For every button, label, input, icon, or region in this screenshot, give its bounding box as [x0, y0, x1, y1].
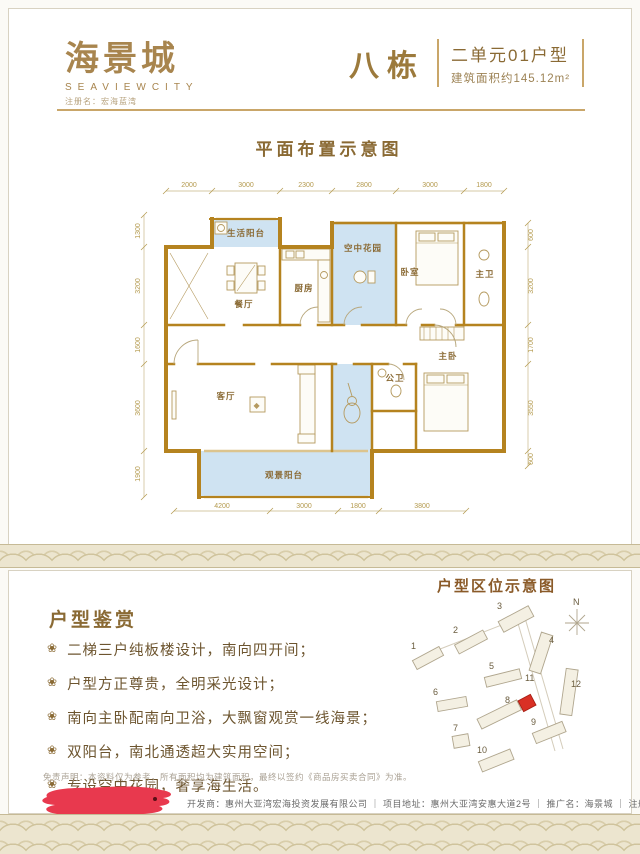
dim-left-4: 3600: [135, 400, 142, 416]
dim-top-3: 2300: [298, 182, 314, 189]
flower-bullet-icon: ❀: [47, 673, 58, 692]
brand-logo: 海景城 SEAVIEWCITY 注册名：宏海蓝湾: [65, 31, 285, 107]
label-bedroom: 卧室: [400, 267, 419, 277]
dim-bottom-2: 3000: [296, 503, 312, 510]
dim-left-2: 3200: [135, 278, 142, 294]
scribble-dot: [153, 797, 157, 801]
appreciation-item-text: 二梯三户纯板楼设计，南向四开间；: [67, 639, 315, 660]
list-item: ❀ 双阳台，南北通透超大实用空间；: [47, 741, 377, 762]
flower-bullet-icon: ❀: [47, 707, 58, 726]
floorplan-drawing: 2000 3000 2300 2800 3000 1800 4200 3000 …: [104, 159, 574, 537]
list-item: ❀ 户型方正尊贵，全明采光设计；: [47, 673, 377, 694]
north-compass-icon: [565, 609, 589, 635]
dim-right-3: 1700: [528, 337, 535, 353]
list-item: ❀ 二梯三户纯板楼设计，南向四开间；: [47, 639, 377, 660]
bldg-num-9: 9: [531, 717, 536, 727]
bldg-num-5: 5: [489, 661, 494, 671]
bldg-num-10: 10: [477, 745, 487, 755]
north-label: N: [573, 597, 580, 607]
header-divider-right: [582, 39, 584, 87]
appreciation-item-text: 双阳台，南北通透超大实用空间；: [67, 741, 300, 762]
dim-top-6: 1800: [476, 182, 492, 189]
dim-top-5: 3000: [422, 182, 438, 189]
svg-text:◆: ◆: [254, 401, 261, 410]
label-master-bath: 主卫: [475, 269, 494, 279]
dim-bottom-4: 3800: [414, 503, 430, 510]
label-sky-garden: 空中花园: [344, 243, 382, 253]
bldg-num-1: 1: [411, 641, 416, 651]
balcony-fills: [199, 219, 396, 497]
dim-right-2: 3200: [528, 278, 535, 294]
label-kitchen: 厨房: [294, 283, 313, 293]
logo-name-cn: 海景城: [65, 31, 285, 80]
logo-name-en: SEAVIEWCITY: [65, 82, 285, 93]
bldg-num-8: 8: [505, 695, 510, 705]
label-view-balcony: 观景阳台: [265, 470, 303, 480]
furniture: ◆: [170, 222, 489, 443]
site-location-map: 1 2 3 4 5 6 7 8 9 10 11 12 N: [405, 591, 627, 787]
bldg-num-3: 3: [497, 601, 502, 611]
header-rule: [57, 109, 585, 111]
bldg-num-2: 2: [453, 625, 458, 635]
dim-left-5: 1900: [135, 466, 142, 482]
wave-pattern-band-bottom: [0, 814, 640, 854]
flower-bullet-icon: ❀: [47, 741, 58, 760]
building-name: 八栋: [349, 41, 425, 85]
dim-top-4: 2800: [356, 182, 372, 189]
dim-left-1: 1300: [135, 223, 142, 239]
blue-corridor-area: [332, 364, 372, 451]
logo-registered-name: 注册名：宏海蓝湾: [65, 96, 285, 107]
dim-top-1: 2000: [181, 182, 197, 189]
unit-header: 八栋 二单元01户型 建筑面积约145.12m²: [349, 39, 596, 87]
bldg-num-4: 4: [549, 635, 554, 645]
label-dining: 餐厅: [233, 299, 253, 309]
bldg-num-12: 12: [571, 679, 581, 689]
label-life-balcony: 生活阳台: [227, 228, 265, 238]
header-divider: [437, 39, 439, 87]
dim-left-3: 1600: [135, 337, 142, 353]
appreciation-item-text: 南向主卧配南向卫浴，大飘窗观赏一线海景；: [67, 707, 377, 728]
appreciation-title: 户型鉴赏: [49, 605, 137, 632]
dim-bottom-3: 1800: [350, 503, 366, 510]
unit-area: 建筑面积约145.12m²: [451, 70, 570, 86]
flower-bullet-icon: ❀: [47, 639, 58, 658]
dim-right-1: 600: [528, 229, 535, 241]
footer-row: 开发商：惠州大亚湾宏海投资发展有限公司 ｜ 项目地址：惠州大亚湾安惠大道2号 ｜…: [9, 789, 631, 813]
developer-info: 开发商：惠州大亚湾宏海投资发展有限公司 ｜ 项目地址：惠州大亚湾安惠大道2号 ｜…: [187, 797, 640, 810]
bldg-num-7: 7: [453, 723, 458, 733]
wave-pattern-band-middle: [0, 544, 640, 568]
appreciation-item-text: 户型方正尊贵，全明采光设计；: [67, 673, 284, 694]
dim-top-2: 3000: [238, 182, 254, 189]
dim-right-5: 600: [528, 453, 535, 465]
label-living: 客厅: [215, 391, 235, 401]
unit-type: 二单元01户型: [451, 41, 570, 66]
plan-title: 平面布置示意图: [9, 135, 640, 160]
dim-bottom-1: 4200: [214, 503, 230, 510]
label-master-bedroom: 主卧: [438, 351, 457, 361]
description-card: 户型鉴赏 ❀ 二梯三户纯板楼设计，南向四开间； ❀ 户型方正尊贵，全明采光设计；…: [8, 570, 632, 814]
floorplan-card: 海景城 SEAVIEWCITY 注册名：宏海蓝湾 八栋 二单元01户型 建筑面积…: [8, 8, 632, 545]
dim-right-4: 3550: [528, 400, 535, 416]
label-public-bath: 公卫: [385, 373, 404, 383]
scribble-shape: [42, 787, 171, 817]
bldg-num-11: 11: [525, 673, 534, 683]
list-item: ❀ 南向主卧配南向卫浴，大飘窗观赏一线海景；: [47, 707, 377, 728]
bldg-num-6: 6: [433, 687, 438, 697]
